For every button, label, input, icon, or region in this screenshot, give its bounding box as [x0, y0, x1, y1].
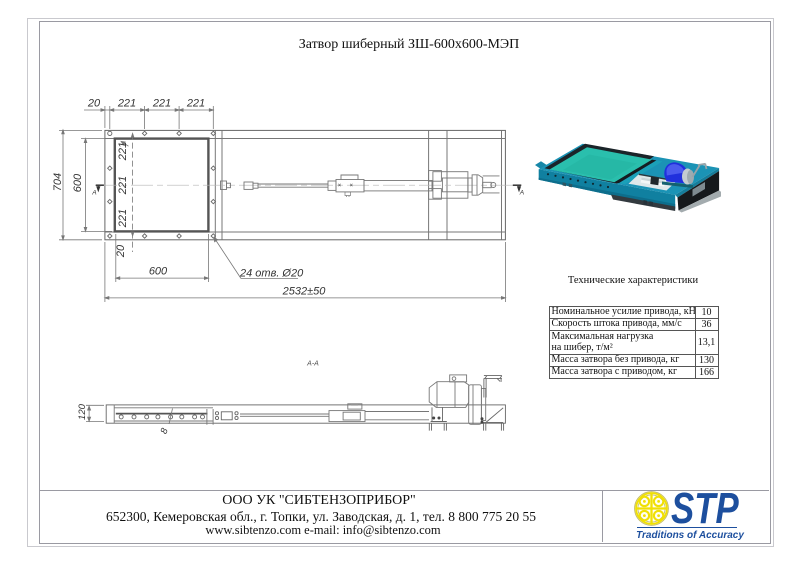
- svg-text:20: 20: [115, 244, 127, 258]
- svg-text:А: А: [91, 190, 96, 197]
- svg-text:120: 120: [77, 403, 88, 420]
- svg-text:221: 221: [186, 98, 205, 110]
- svg-text:221: 221: [117, 98, 136, 110]
- svg-text:600: 600: [149, 266, 168, 278]
- svg-text:221: 221: [117, 142, 129, 161]
- svg-text:2532±50: 2532±50: [282, 286, 327, 298]
- svg-text:20: 20: [87, 98, 101, 110]
- svg-text:221: 221: [117, 176, 129, 195]
- svg-text:221: 221: [152, 98, 171, 110]
- svg-text:8: 8: [159, 426, 171, 435]
- svg-text:А: А: [519, 190, 524, 197]
- svg-text:704: 704: [52, 173, 64, 191]
- svg-text:А-А: А-А: [306, 361, 319, 368]
- svg-text:24 отв. Ø20: 24 отв. Ø20: [239, 268, 304, 280]
- svg-text:600: 600: [72, 173, 84, 192]
- svg-text:221: 221: [117, 209, 129, 228]
